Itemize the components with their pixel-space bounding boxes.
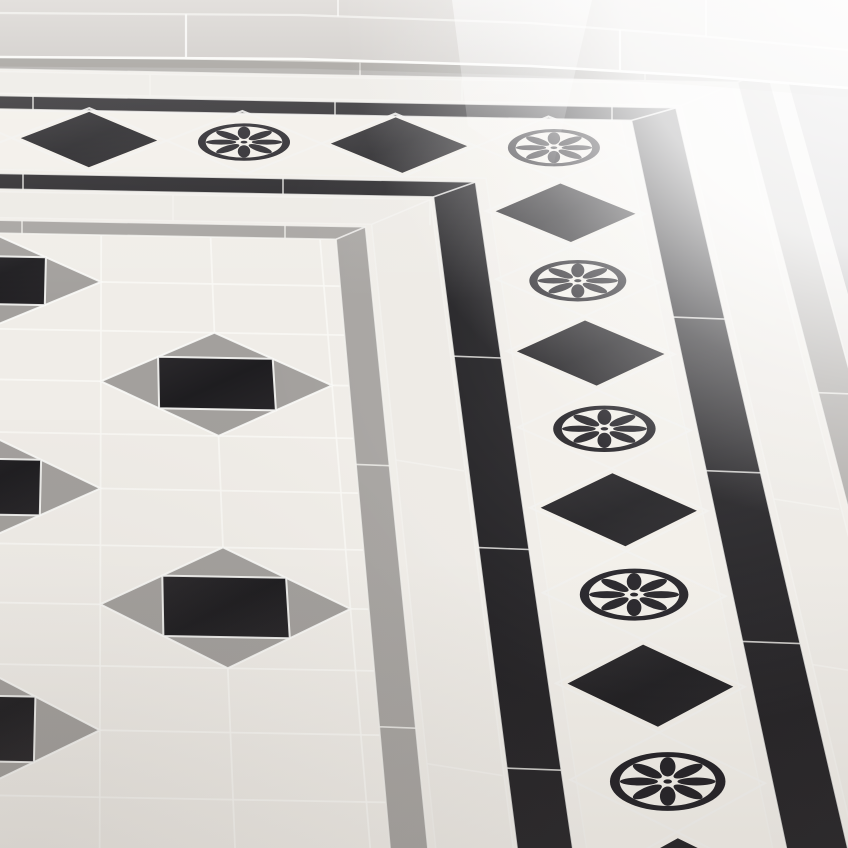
left-shade xyxy=(0,420,520,848)
victorian-tile-floor-photo xyxy=(0,0,848,848)
lighting-overlays xyxy=(0,0,848,848)
floor-scene-canvas xyxy=(0,0,848,848)
